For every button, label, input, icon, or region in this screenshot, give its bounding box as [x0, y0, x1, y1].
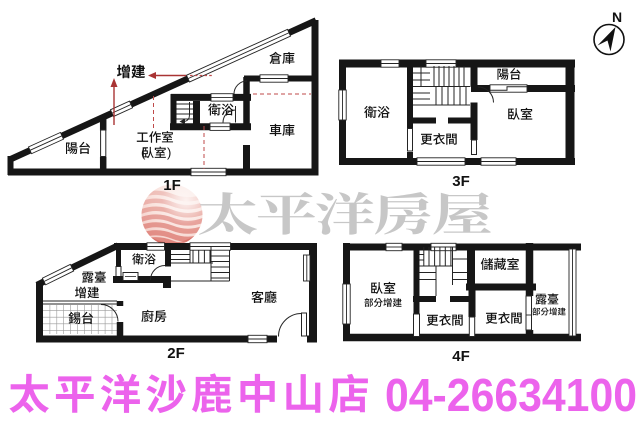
svg-text:4F: 4F	[452, 348, 470, 365]
svg-text:(: (	[141, 145, 146, 160]
svg-text:1F: 1F	[163, 177, 181, 194]
svg-text:3F: 3F	[452, 173, 470, 190]
svg-text:2F: 2F	[167, 345, 185, 362]
svg-text:N: N	[612, 9, 622, 25]
svg-text:): )	[167, 145, 171, 160]
svg-text:04-26634100: 04-26634100	[385, 369, 637, 421]
